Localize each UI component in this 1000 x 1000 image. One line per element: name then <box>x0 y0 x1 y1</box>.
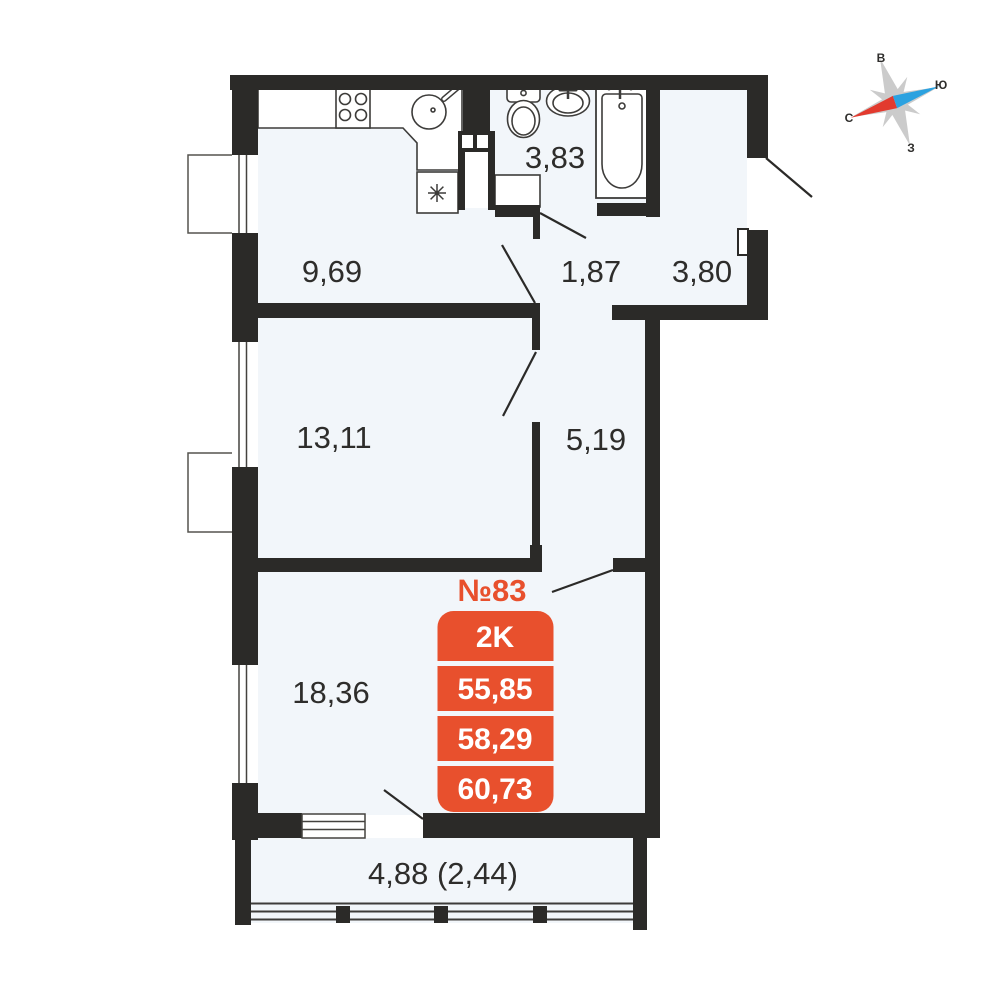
facade-box-mid <box>188 453 238 532</box>
unit-area-with-balcony: 60,73 <box>457 773 532 806</box>
compass-label-west: З <box>907 141 915 155</box>
wall-segment <box>612 305 768 320</box>
vent-shaft-cell <box>477 135 488 148</box>
wall-segment <box>235 838 251 925</box>
wall-segment <box>533 215 540 239</box>
floor-plan-page: 9,69 3,83 1,87 3,80 13,11 5,19 18,36 4,8… <box>0 0 1000 1000</box>
wall-segment <box>532 318 540 350</box>
unit-area-total: 58,29 <box>457 723 532 756</box>
stove-icon <box>336 87 370 128</box>
wall-segment <box>646 85 660 217</box>
compass-label-east: В <box>877 51 886 65</box>
compass-label-north: С <box>845 111 854 125</box>
washbasin-icon <box>547 86 590 116</box>
wall-segment <box>488 152 495 210</box>
unit-area-living: 55,85 <box>457 673 532 706</box>
hall-area-label: 1,87 <box>561 254 621 289</box>
glazing-mullion <box>434 906 448 923</box>
unit-card-divider <box>438 761 554 766</box>
facade-box-top <box>188 155 238 233</box>
bedroom-area-label: 13,11 <box>296 420 371 455</box>
unit-rooms-type: 2K <box>476 621 515 654</box>
wall-segment <box>458 152 465 210</box>
bathtub-icon <box>596 86 648 199</box>
wall-segment <box>463 88 490 133</box>
entry-door-swing <box>766 158 812 197</box>
bathroom-door-leaf <box>495 175 540 207</box>
wall-segment <box>232 467 258 665</box>
wall-segment <box>613 558 660 572</box>
vent-shaft-cell <box>462 135 473 148</box>
corridor-area-label: 5,19 <box>566 422 626 457</box>
glazing-mullion <box>533 906 547 923</box>
unit-card-divider <box>438 711 554 716</box>
wall-segment <box>232 75 258 155</box>
electrical-panel <box>738 229 748 255</box>
glazing-mullion <box>336 906 350 923</box>
wall-segment <box>597 203 660 216</box>
window-living-room <box>232 665 258 783</box>
wall-segment <box>633 838 647 930</box>
wall-segment <box>532 422 540 558</box>
toilet-icon <box>507 85 540 138</box>
wall-segment <box>423 813 660 838</box>
wall-segment <box>230 75 768 90</box>
compass-rose: В Ю С З <box>836 43 955 161</box>
living-room-area-label: 18,36 <box>292 675 370 710</box>
wall-segment <box>258 303 540 318</box>
window-kitchen <box>232 155 258 233</box>
wall-segment <box>530 545 542 572</box>
entry-hall-area-label: 3,80 <box>672 254 732 289</box>
balcony-area-label: 4,88 (2,44) <box>368 856 518 891</box>
compass-label-south: Ю <box>935 78 947 92</box>
kitchen-area-label: 9,69 <box>302 254 362 289</box>
refrigerator-icon <box>417 172 458 213</box>
bathroom-area-label: 3,83 <box>525 140 585 175</box>
wall-segment <box>232 233 258 342</box>
wall-segment <box>258 558 542 572</box>
window-balcony-wall <box>302 814 365 838</box>
unit-card-divider <box>438 661 554 666</box>
north-needle <box>848 96 897 124</box>
wall-segment <box>248 813 302 838</box>
window-bedroom <box>232 342 258 467</box>
unit-number-label: №83 <box>457 573 526 608</box>
wall-segment <box>747 75 768 158</box>
floor-plan: 9,69 3,83 1,87 3,80 13,11 5,19 18,36 4,8… <box>0 0 1000 1000</box>
